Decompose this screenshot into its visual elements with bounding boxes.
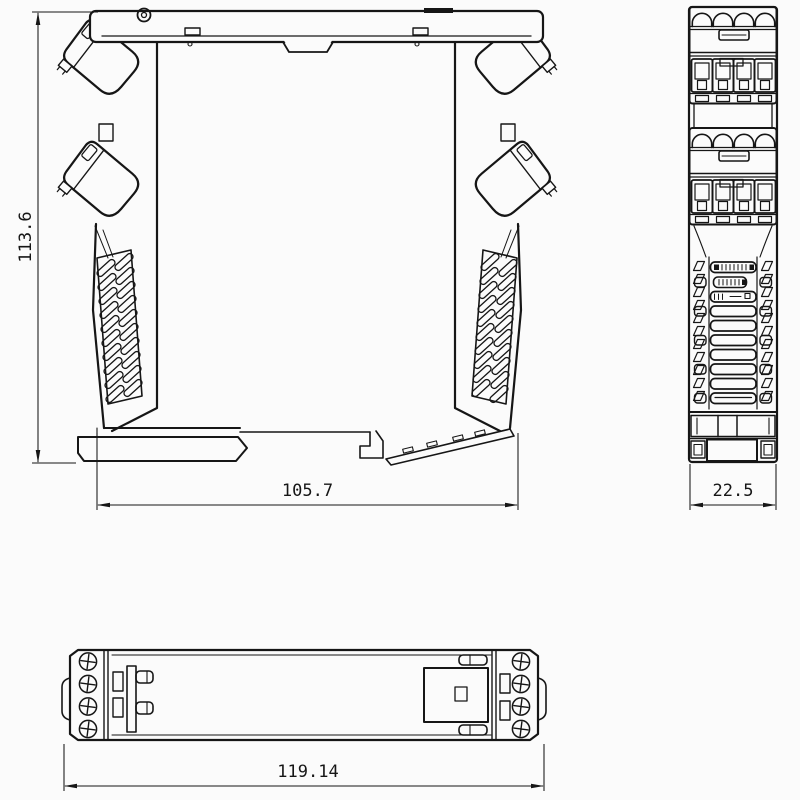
left-terminal-screws [79, 653, 96, 738]
dimension-side-height: 113.6 [16, 12, 98, 463]
dim-label-top-length: 119.14 [277, 762, 338, 782]
terminal-housing-lower-left [51, 139, 143, 230]
right-grip-bump [538, 678, 546, 720]
din-foot-wedge [386, 429, 514, 465]
vent-louvers-left [96, 250, 144, 404]
front-din-foot [689, 412, 777, 461]
dim-label-side-height: 113.6 [16, 211, 36, 262]
dimension-front-width: 22.5 [690, 464, 776, 510]
front-face-slots [695, 262, 772, 404]
vent-louvers-right [471, 250, 519, 404]
dim-label-front-width: 22.5 [713, 481, 754, 501]
din-clip-left [127, 666, 153, 732]
left-grip-bump [62, 678, 70, 720]
right-terminal-screws [512, 653, 529, 738]
drawing-sheet: 113.6 105.7 22.5 119.14 [0, 0, 800, 800]
din-clip-right [424, 655, 488, 735]
side-view-drawing [51, 8, 563, 465]
cap-marking [424, 8, 453, 13]
technical-drawing: 113.6 105.7 22.5 119.14 [0, 0, 800, 800]
terminal-housing-lower-right [471, 139, 563, 230]
din-foot-slider [78, 428, 247, 461]
dim-label-side-width: 105.7 [282, 481, 333, 501]
dimension-top-length: 119.14 [64, 744, 544, 791]
top-view-drawing [62, 650, 546, 740]
front-view-drawing [689, 7, 777, 462]
